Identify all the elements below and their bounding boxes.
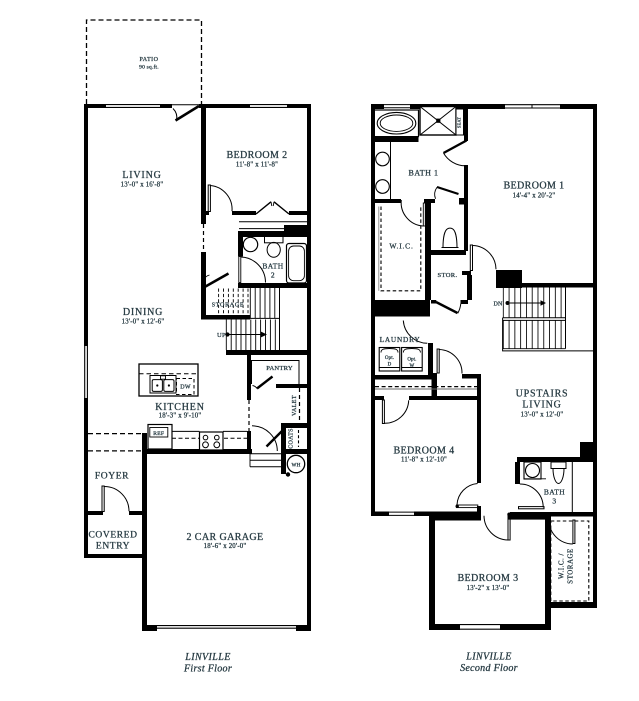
svg-text:D: D xyxy=(388,363,392,368)
svg-text:BATH: BATH xyxy=(262,262,283,271)
svg-text:13'-0" x 12'-0": 13'-0" x 12'-0" xyxy=(521,412,564,419)
svg-text:W.I.C. /: W.I.C. / xyxy=(558,553,566,579)
svg-text:BEDROOM 4: BEDROOM 4 xyxy=(393,446,454,457)
svg-text:13'-2" x 13'-0": 13'-2" x 13'-0" xyxy=(467,585,510,592)
svg-text:LIVING: LIVING xyxy=(122,170,161,181)
svg-text:Opt.: Opt. xyxy=(385,356,394,361)
svg-text:BATH: BATH xyxy=(544,488,565,497)
svg-text:FOYER: FOYER xyxy=(95,472,129,482)
svg-text:14'-4" x 20'-2": 14'-4" x 20'-2" xyxy=(513,193,556,200)
svg-text:KITCHEN: KITCHEN xyxy=(155,402,204,413)
svg-text:VALET: VALET xyxy=(292,395,298,416)
svg-text:BEDROOM 2: BEDROOM 2 xyxy=(226,150,287,161)
svg-text:STORAGE: STORAGE xyxy=(212,303,244,309)
svg-text:SEAT: SEAT xyxy=(456,117,461,128)
svg-text:UP: UP xyxy=(217,332,226,339)
svg-text:18'-6" x 20'-0": 18'-6" x 20'-0" xyxy=(204,543,247,550)
svg-text:First Floor: First Floor xyxy=(183,664,232,675)
svg-text:18'-3" x 9'-10": 18'-3" x 9'-10" xyxy=(159,413,202,420)
svg-text:PANTRY: PANTRY xyxy=(266,365,293,372)
svg-text:PATIO: PATIO xyxy=(140,57,159,63)
svg-text:LAUNDRY: LAUNDRY xyxy=(380,335,421,344)
svg-text:DW: DW xyxy=(180,385,191,391)
svg-text:BEDROOM 3: BEDROOM 3 xyxy=(457,573,518,584)
svg-text:STORAGE: STORAGE xyxy=(567,548,575,584)
svg-text:13'-0" x 16'-8": 13'-0" x 16'-8" xyxy=(121,182,164,189)
svg-text:3: 3 xyxy=(552,497,556,506)
svg-text:WH: WH xyxy=(291,463,300,469)
svg-text:2: 2 xyxy=(271,271,275,280)
svg-text:W.I.C.: W.I.C. xyxy=(389,242,413,251)
svg-text:STOR.: STOR. xyxy=(437,272,457,279)
svg-text:BEDROOM 1: BEDROOM 1 xyxy=(503,181,564,192)
svg-text:COVERED: COVERED xyxy=(88,531,137,541)
svg-text:Opt.: Opt. xyxy=(407,358,416,363)
svg-text:LINVILLE: LINVILLE xyxy=(465,652,511,663)
svg-text:COATS: COATS xyxy=(289,428,295,449)
svg-text:11'-8" x 12'-10": 11'-8" x 12'-10" xyxy=(401,457,447,464)
svg-text:ENTRY: ENTRY xyxy=(96,542,130,552)
svg-text:W: W xyxy=(409,364,414,369)
svg-text:DN: DN xyxy=(493,302,503,308)
svg-text:90 sq.ft.: 90 sq.ft. xyxy=(139,64,159,71)
svg-text:REF: REF xyxy=(153,431,164,437)
svg-text:LIVING: LIVING xyxy=(522,400,561,411)
svg-text:DINING: DINING xyxy=(123,307,163,318)
svg-text:LINVILLE: LINVILLE xyxy=(184,652,230,663)
svg-text:11'-8" x 11'-8": 11'-8" x 11'-8" xyxy=(236,162,278,169)
svg-text:13'-0" x 12'-6": 13'-0" x 12'-6" xyxy=(122,319,165,326)
svg-text:UPSTAIRS: UPSTAIRS xyxy=(516,389,569,400)
svg-text:BATH 1: BATH 1 xyxy=(409,169,439,178)
svg-text:Second Floor: Second Floor xyxy=(460,663,518,674)
svg-text:2 CAR GARAGE: 2 CAR GARAGE xyxy=(186,532,263,543)
